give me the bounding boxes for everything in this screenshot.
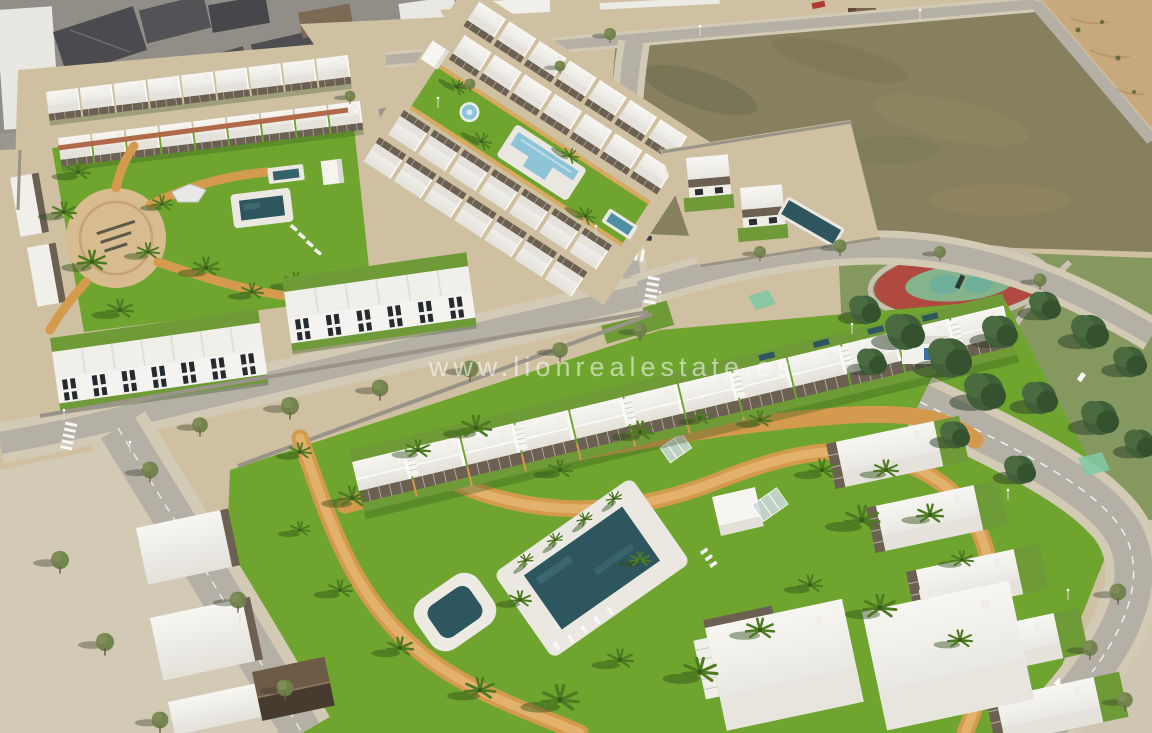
villa [686, 154, 731, 198]
villa [740, 184, 785, 228]
scene-canvas: www.lionrealestate.es [0, 0, 1152, 733]
watermark-text: www.lionrealestate.es [428, 352, 795, 382]
aerial-render: www.lionrealestate.es [0, 0, 1152, 733]
plunge-pool [230, 187, 294, 228]
